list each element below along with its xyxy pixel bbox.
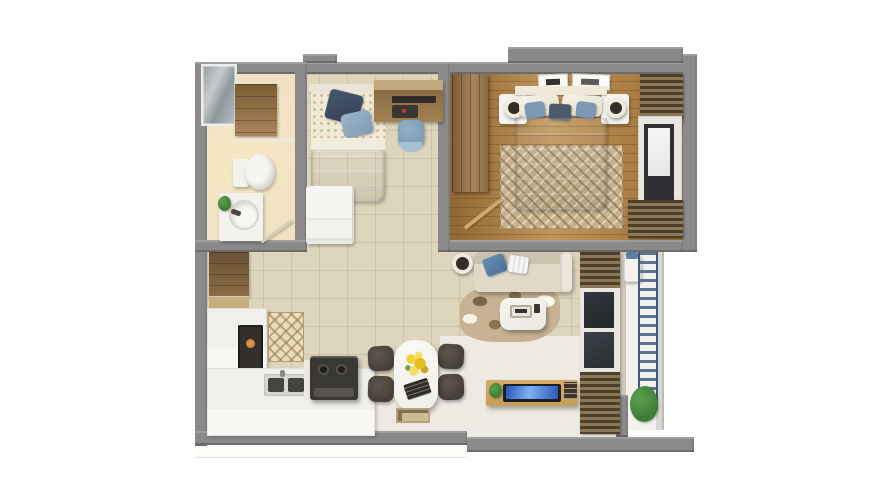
double-bed — [515, 86, 607, 210]
sink-faucet — [280, 370, 285, 377]
balcony-door-pane-upper — [584, 292, 614, 328]
backsplash-tiles — [268, 312, 304, 362]
master-louver-blind-top — [640, 74, 683, 122]
wall-bathroom-bottom — [195, 240, 307, 252]
master-window-pane — [648, 128, 670, 176]
table-flowers — [402, 350, 432, 380]
desk-keyboard — [392, 96, 436, 103]
floor-plan-image — [0, 0, 889, 500]
wall-master-bottom — [450, 240, 683, 252]
shower-glass-enclosure — [201, 64, 237, 126]
console-plant — [489, 383, 502, 398]
dining-chair-2 — [368, 376, 395, 403]
burner-left — [318, 364, 329, 375]
washbasin — [229, 200, 259, 230]
entrance-doormat — [396, 408, 430, 423]
bathroom-plant — [218, 196, 231, 211]
kitchen-tall-cabinet — [209, 252, 249, 296]
master-louver-blind-bottom — [628, 200, 683, 238]
burner-right — [336, 364, 347, 375]
sink-basin-left — [268, 378, 284, 392]
sink-basin-right — [288, 378, 304, 392]
dining-chair-4 — [438, 374, 465, 401]
dining-chair-3 — [437, 343, 464, 369]
art-mark — [581, 79, 599, 86]
floor-lamp — [452, 253, 473, 274]
bedroom2-white-cabinet — [306, 186, 354, 244]
art-mark — [546, 79, 560, 85]
bed-cushion-blue-left — [524, 101, 546, 120]
bathroom-shelf-edge — [235, 138, 293, 142]
tv-remote — [534, 304, 540, 313]
wall-top-notch-small — [303, 54, 337, 63]
cooktop-tray — [314, 388, 354, 397]
balcony-door-pane-lower — [584, 332, 614, 368]
oven-ring — [246, 339, 255, 348]
wall-top-notch-master — [508, 47, 683, 63]
balcony-plant — [630, 386, 658, 422]
bed-cushion-blue-right — [575, 101, 597, 120]
bed-headboard — [515, 86, 607, 95]
dining-chair-1 — [367, 345, 394, 371]
tv-screen — [506, 386, 558, 399]
laptop-logo-dot — [402, 109, 406, 113]
wall-right-master — [683, 54, 697, 252]
living-louver-bottom — [580, 372, 620, 434]
sofa-armrest — [560, 252, 572, 292]
exterior-slab-edge — [195, 445, 467, 458]
table-lamp-right — [606, 98, 626, 118]
console-books — [564, 382, 577, 399]
living-louver-top — [580, 252, 620, 288]
bed-blue-duvet — [515, 118, 607, 210]
toilet-bowl — [245, 154, 275, 190]
master-wardrobe — [452, 74, 488, 192]
wall-bottom-right — [467, 437, 694, 452]
sofa-pillow-striped — [507, 255, 529, 275]
bathroom-wall-cabinet — [235, 84, 277, 136]
laundry-basket — [626, 252, 638, 259]
tray-item — [515, 309, 527, 313]
